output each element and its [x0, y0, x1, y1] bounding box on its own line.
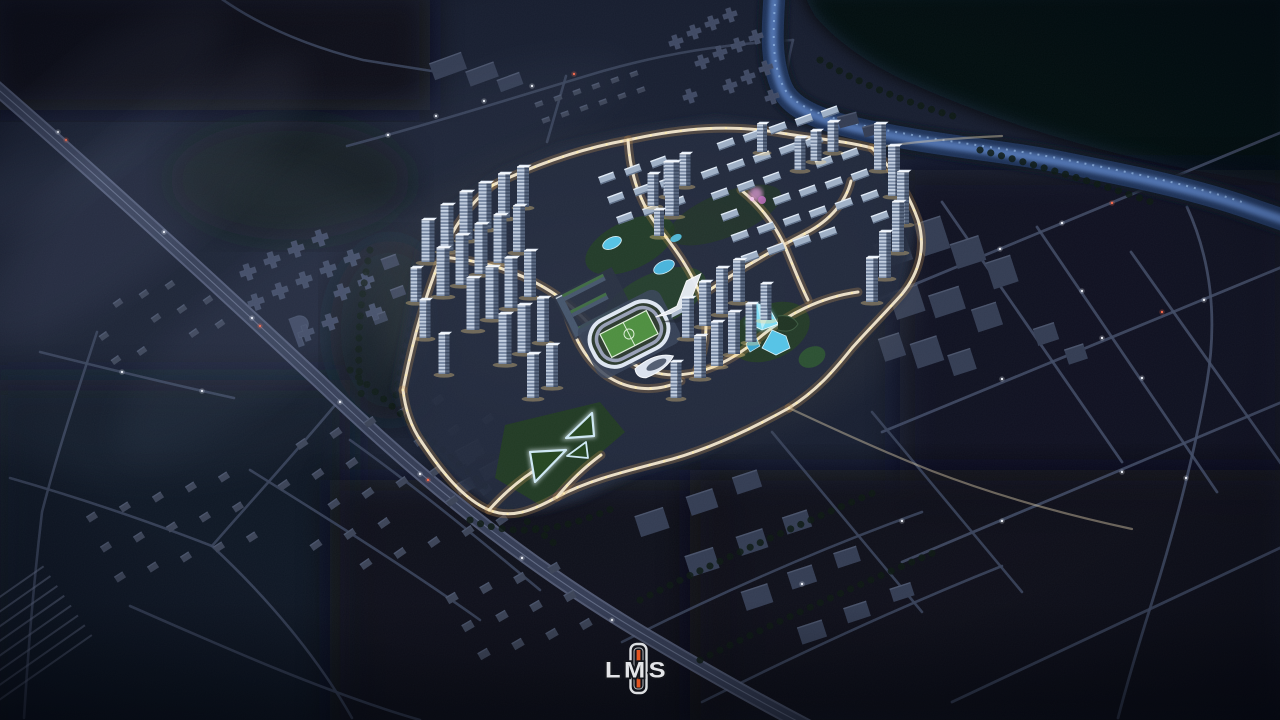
- atmosphere: [0, 0, 1280, 720]
- lms-logo-text: LMS: [605, 658, 669, 683]
- scene-render: LMS: [0, 0, 1280, 720]
